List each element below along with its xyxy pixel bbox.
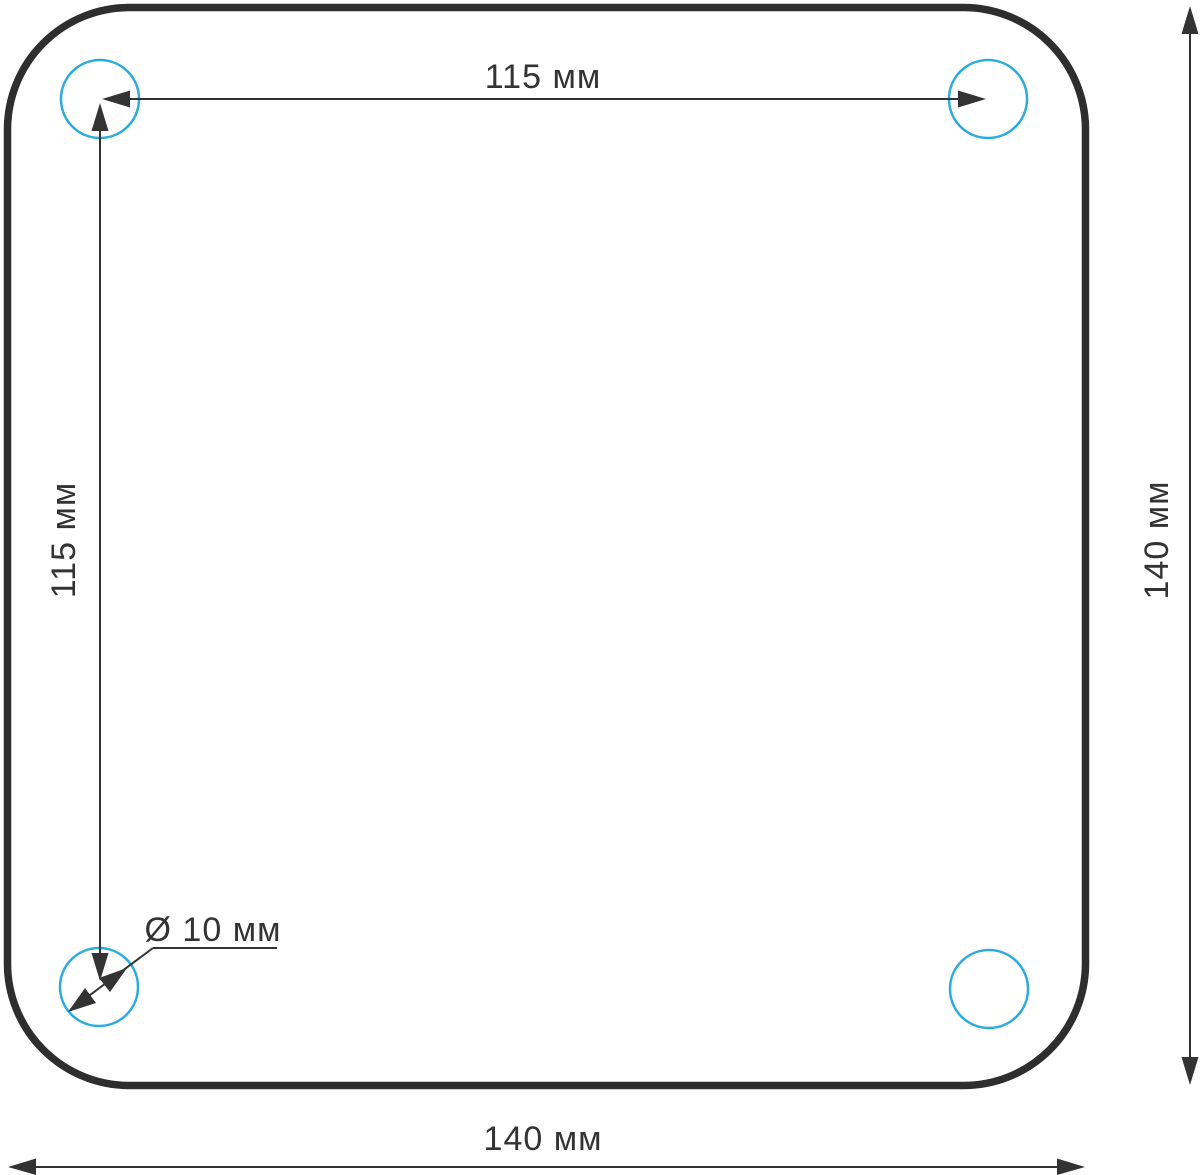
label-plate-height: 140 мм xyxy=(1138,481,1176,600)
label-plate-width: 140 мм xyxy=(484,1120,603,1158)
arrowhead-right-dim-up-icon xyxy=(1182,6,1199,34)
dimension-drawing: 115 мм 115 мм 140 мм 140 мм Ø 10 мм xyxy=(0,0,1200,1175)
label-hole-spacing-vertical: 115 мм xyxy=(45,482,83,598)
arrowhead-right-dim-down-icon xyxy=(1182,1057,1199,1085)
label-hole-spacing-horizontal: 115 мм xyxy=(485,58,601,96)
arrowhead-bottom-dim-right-icon xyxy=(1057,1159,1085,1175)
arrowhead-bottom-dim-left-icon xyxy=(8,1159,36,1175)
drawing-canvas: 115 мм 115 мм 140 мм 140 мм Ø 10 мм xyxy=(0,0,1200,1175)
label-hole-diameter: Ø 10 мм xyxy=(145,911,282,949)
